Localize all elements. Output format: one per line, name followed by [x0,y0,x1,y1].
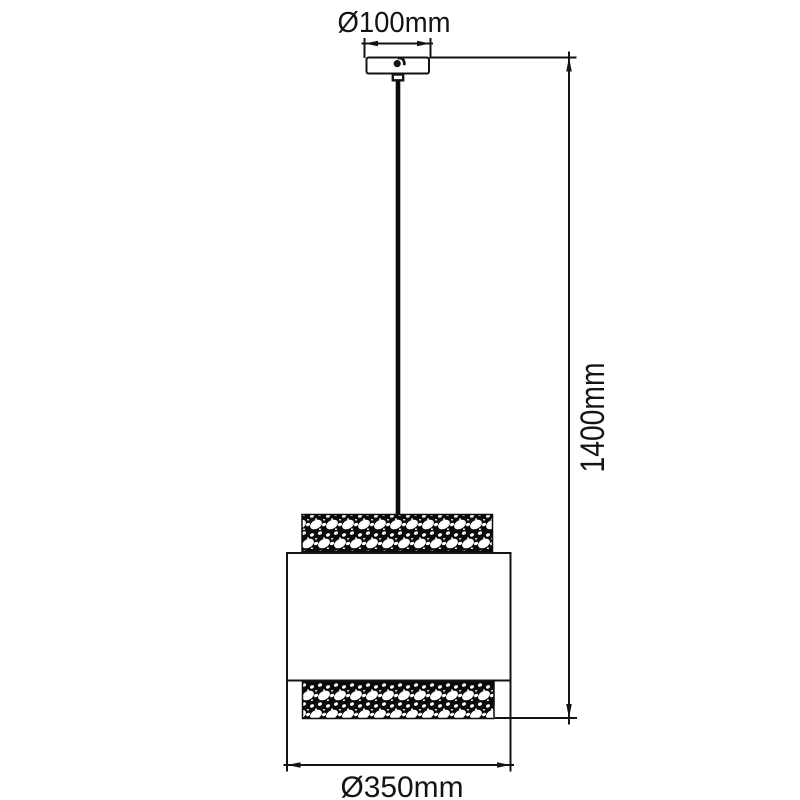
svg-text:1400mm: 1400mm [574,363,612,473]
svg-text:Ø100mm: Ø100mm [338,7,451,39]
svg-text:Ø350mm: Ø350mm [341,771,464,800]
